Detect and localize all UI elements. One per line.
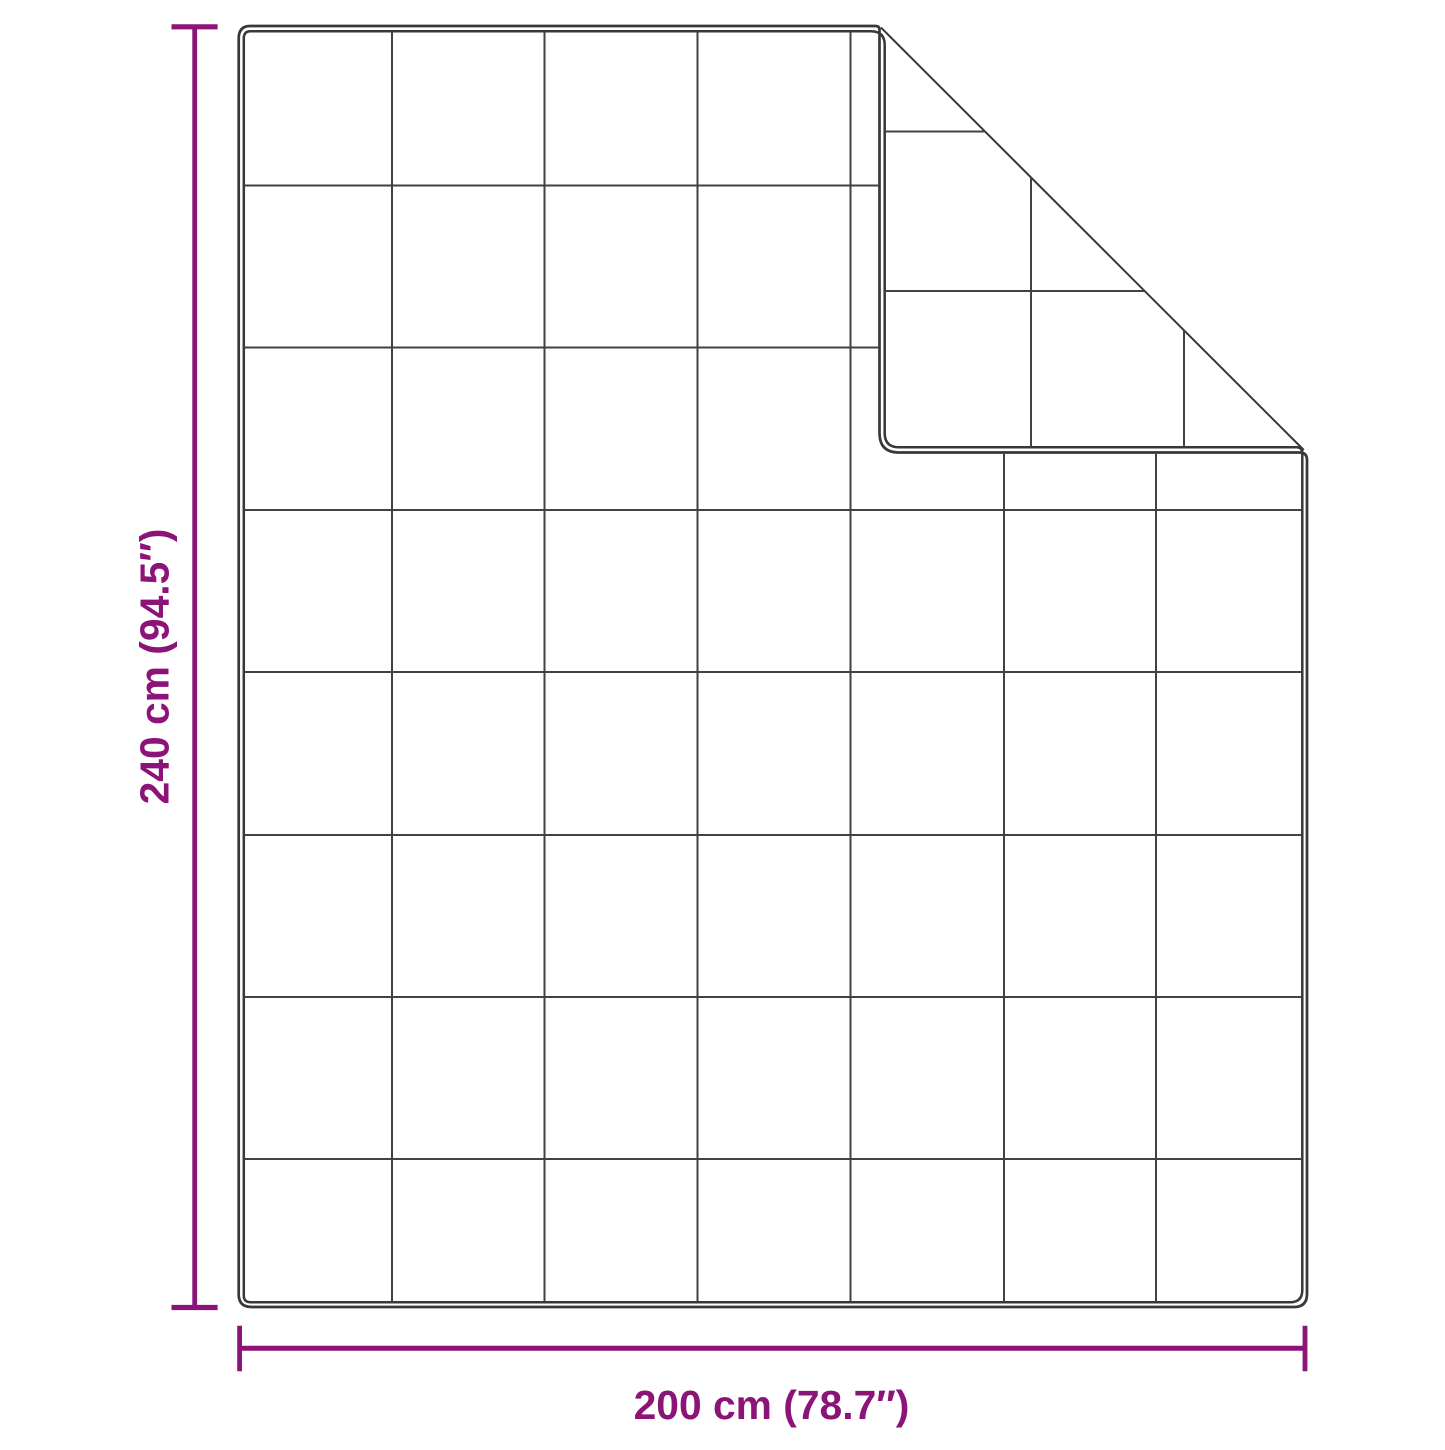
svg-text:200 cm (78.7″): 200 cm (78.7″) [634, 1382, 910, 1428]
svg-text:240 cm (94.5″): 240 cm (94.5″) [132, 529, 178, 805]
